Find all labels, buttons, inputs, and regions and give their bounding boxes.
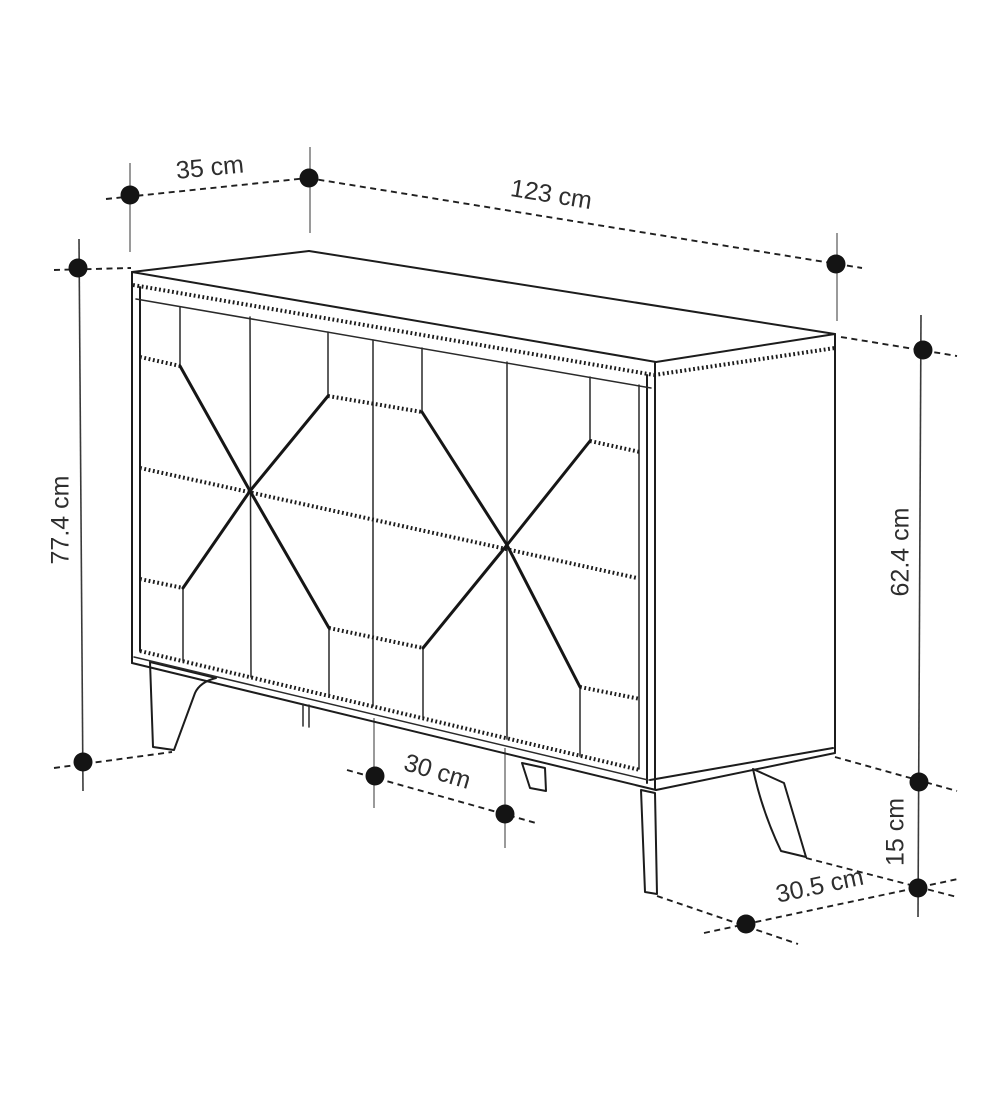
measurement-dot <box>121 186 140 205</box>
cabinet-outline-line <box>656 334 835 362</box>
dim-label-top-width: 123 cm <box>509 174 594 215</box>
panel-line <box>134 657 648 780</box>
cabinet-outline-line <box>650 748 833 780</box>
measurement-dot <box>827 255 846 274</box>
furniture-dimension-diagram: 35 cm123 cm77.4 cm62.4 cm15 cm30 cm30.5 … <box>0 0 1000 1100</box>
hatched-line <box>580 687 640 699</box>
measurement-dot <box>914 341 933 360</box>
dim-label-top-depth: 35 cm <box>175 150 245 184</box>
hatched-line <box>328 396 422 412</box>
star-ray-line <box>180 366 250 491</box>
dimension-dashed-line <box>657 896 798 944</box>
dimension-line <box>79 239 83 791</box>
dimension-dashed-line <box>54 268 131 270</box>
cabinet-leg <box>522 763 546 791</box>
dim-label-leg-height: 15 cm <box>882 798 910 866</box>
star-pattern-rays <box>180 366 590 687</box>
measurement-dot <box>300 169 319 188</box>
star-ray-line <box>250 396 328 491</box>
star-ray-line <box>507 545 580 687</box>
measurement-dot <box>496 805 515 824</box>
hatched-line <box>133 285 654 375</box>
dimension-dashed-lines <box>54 178 958 944</box>
cabinet-outline-line <box>132 272 656 362</box>
measurement-dot <box>909 879 928 898</box>
diagram-canvas: 35 cm123 cm77.4 cm62.4 cm15 cm30 cm30.5 … <box>0 0 1000 1100</box>
measurement-dot <box>910 773 929 792</box>
dim-label-body-height: 62.4 cm <box>887 508 915 597</box>
dimension-dashed-line <box>835 757 957 791</box>
dimension-line <box>918 315 921 917</box>
dim-label-total-height: 77.4 cm <box>47 476 75 565</box>
hatched-line <box>140 468 637 578</box>
hatched-line <box>140 651 640 770</box>
cabinet-outline <box>132 251 835 790</box>
star-ray-line <box>423 545 507 648</box>
measurement-dot <box>69 259 88 278</box>
hatched-line <box>140 357 180 366</box>
hatched-line <box>329 628 423 648</box>
measurement-dot <box>737 915 756 934</box>
cabinet-legs <box>150 662 806 894</box>
cabinet-leg <box>641 790 657 894</box>
cabinet-outline-line <box>309 251 835 334</box>
door-panel-lines <box>134 299 651 780</box>
star-ray-line <box>250 491 329 628</box>
star-ray-line <box>422 412 507 545</box>
hatched-line <box>654 348 835 375</box>
hatched-line <box>140 579 183 588</box>
dimension-dashed-line <box>841 337 957 356</box>
cabinet-leg <box>753 769 806 857</box>
panel-line <box>136 299 651 388</box>
measurement-dot <box>74 753 93 772</box>
hatched-line <box>590 441 640 452</box>
extension-lines <box>130 147 837 848</box>
star-ray-line <box>183 491 250 588</box>
hatched-edge-lines <box>133 285 835 770</box>
measurement-dot <box>366 767 385 786</box>
cabinet-outline-line <box>656 753 835 790</box>
dimension-dashed-line <box>54 752 172 768</box>
star-ray-line <box>507 441 590 545</box>
panel-line <box>250 317 251 677</box>
cabinet-outline-line <box>132 251 309 272</box>
